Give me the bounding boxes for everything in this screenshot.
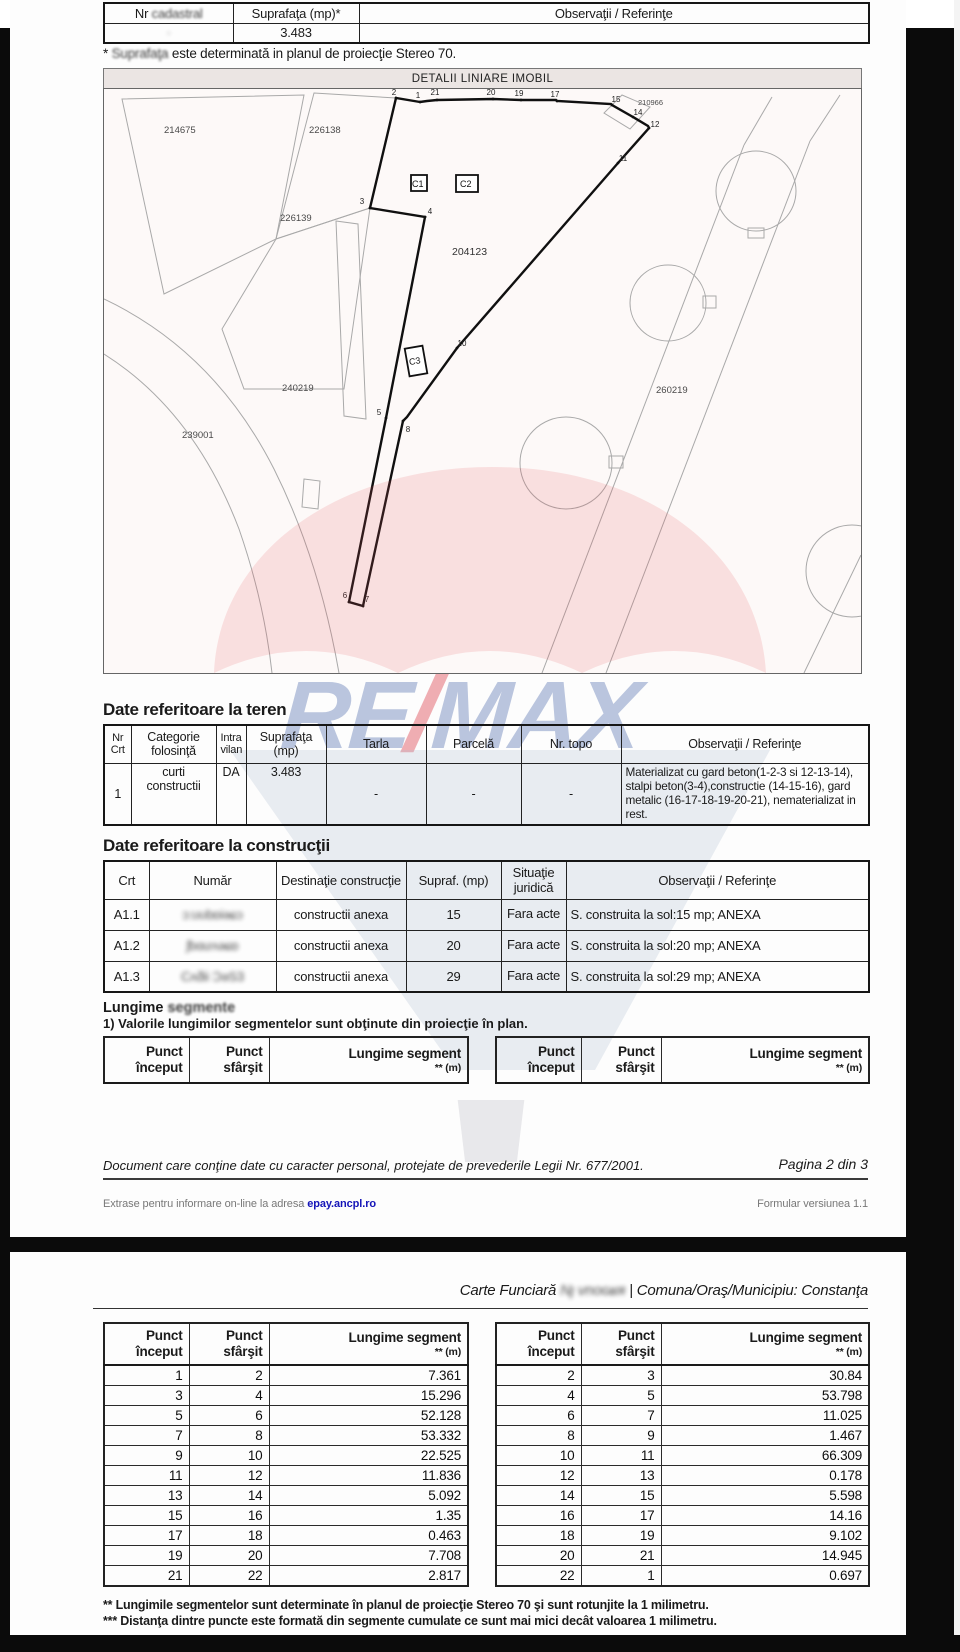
parcel-226139: 226139: [280, 213, 312, 224]
col-lungime-segment: Lungime segment** (m): [269, 1323, 468, 1365]
epay-ancpi-link[interactable]: epay.ancpl.ro: [307, 1198, 376, 1210]
col-crt: Crt: [104, 861, 149, 899]
teren-categorie: curti constructii: [131, 763, 216, 825]
page-number: Pagina 2 din 3: [778, 1156, 868, 1172]
segment-row: 14155.598: [496, 1486, 869, 1506]
constructions: C1 C2 C3: [405, 175, 478, 376]
col-observatii: Observaţii / Referinţe: [359, 3, 869, 23]
segment-row: 21222.817: [104, 1566, 468, 1587]
teren-suprafata: 3.483: [246, 763, 326, 825]
svg-text:14: 14: [634, 108, 643, 117]
supraf-a12: 20: [406, 930, 501, 961]
segment-row: 2330.84: [496, 1365, 869, 1386]
segment-row: 202114.945: [496, 1546, 869, 1566]
col-nr-topo: Nr. topo: [521, 725, 621, 763]
col-nr-cadastral: Nr cadastral: [104, 3, 233, 23]
lungime-note: 1) Valorile lungimilor segmentelor sunt …: [103, 1016, 528, 1031]
teren-topo: -: [521, 763, 621, 825]
footnote-3stars: *** Distanţa dintre puncte este formată …: [103, 1614, 717, 1628]
teren-nr: 1: [104, 763, 131, 825]
page-1: RE / MAX Nr cadastral Suprafaţa (mp)* Ob…: [10, 0, 906, 1237]
segment-row: 127.361: [104, 1365, 468, 1386]
header-divider: [93, 1308, 868, 1309]
segment-row: 6711.025: [496, 1406, 869, 1426]
teren-parcela: -: [426, 763, 521, 825]
col-tarla: Tarla: [326, 725, 426, 763]
col-punct-inceput: Punct început: [496, 1037, 581, 1083]
cadastral-map: 1 2 3 4 5 6 7 8 10 11 12 14 15 17 19 20 …: [103, 88, 862, 674]
segment-row: 19207.708: [104, 1546, 468, 1566]
building-c1-label: C1: [412, 179, 424, 189]
privacy-note: Document care conţine date cu caracter p…: [103, 1158, 644, 1173]
segment-table-right: Punct început Punct sfârşit Lungime segm…: [495, 1322, 870, 1587]
observatii-value: [359, 23, 869, 43]
form-version: Formular versiunea 1.1: [757, 1198, 868, 1210]
svg-text:8: 8: [406, 425, 411, 434]
crt-a12: A1.2: [104, 930, 149, 961]
svg-text:2: 2: [392, 88, 397, 97]
numar-a12: ʃbɑưʌəɕɒ: [149, 930, 276, 961]
svg-text:1: 1: [416, 91, 421, 100]
supraf-a11: 15: [406, 899, 501, 930]
parcel-226138: 226138: [309, 125, 341, 136]
segment-row: 18199.102: [496, 1526, 869, 1546]
stereo70-note: * Suprafaţa este determinată in planul d…: [103, 46, 456, 61]
col-punct-inceput: Punct început: [104, 1037, 189, 1083]
obs-a11: S. construita la sol:15 mp; ANEXA: [566, 899, 869, 930]
svg-text:15: 15: [612, 95, 621, 104]
segment-row: 12130.178: [496, 1466, 869, 1486]
teren-heading: Date referitoare la teren: [103, 700, 286, 720]
obs-a13: S. construita la sol:29 mp; ANEXA: [566, 961, 869, 992]
col-lungime-segment: Lungime segment** (m): [661, 1037, 869, 1083]
cadastral-number-table: Nr cadastral Suprafaţa (mp)* Observaţii …: [103, 2, 870, 44]
col-punct-sfarsit: Punct sfârşit: [581, 1323, 661, 1365]
obs-a12: S. construita la sol:20 mp; ANEXA: [566, 930, 869, 961]
svg-text:10: 10: [458, 339, 467, 348]
segment-row: 111211.836: [104, 1466, 468, 1486]
numar-a11: ɔ:ʊʊbɒiəɕɔ: [149, 899, 276, 930]
online-extras-note: Extrase pentru informare on-line la adre…: [103, 1198, 376, 1210]
constructii-row: A1.1 ɔ:ʊʊbɒiəɕɔ constructii anexa 15 Far…: [104, 899, 869, 930]
situatie-a11: Fara acte: [501, 899, 566, 930]
situatie-a12: Fara acte: [501, 930, 566, 961]
suprafata-value: 3.483: [233, 23, 359, 43]
page-2: Carte Funciară Nȷ vnᴏɢʁя | Comuna/Oraş/M…: [10, 1252, 906, 1635]
svg-text:21: 21: [431, 88, 440, 97]
teren-tarla: -: [326, 763, 426, 825]
svg-text:17: 17: [551, 90, 560, 99]
segment-row: 15161.35: [104, 1506, 468, 1526]
svg-text:20: 20: [487, 88, 496, 97]
scanned-cadastral-document: { "colors":{"watermark_red":"#e05560","w…: [0, 0, 960, 1652]
segment-table-left-empty: Punct început Punct sfârşit Lungime segm…: [103, 1036, 469, 1084]
segment-row: 161714.16: [496, 1506, 869, 1526]
parcel-204123: 204123: [452, 246, 487, 258]
col-constructii-observatii: Observaţii / Referinţe: [566, 861, 869, 899]
map-title: DETALII LINIARE IMOBIL: [412, 73, 554, 85]
col-nr-crt: Nr Crt: [104, 725, 131, 763]
supraf-a13: 29: [406, 961, 501, 992]
destinatie-a11: constructii anexa: [276, 899, 406, 930]
col-suprafata-mp: Suprafaţa (mp): [246, 725, 326, 763]
crt-a11: A1.1: [104, 899, 149, 930]
col-lungime-segment: Lungime segment** (m): [269, 1037, 468, 1083]
lungime-heading: Lungime segmente: [103, 1000, 235, 1016]
segment-table-right-empty: Punct început Punct sfârşit Lungime segm…: [495, 1036, 870, 1084]
segment-row: 2210.697: [496, 1566, 869, 1587]
carte-funciara-header: Carte Funciară Nȷ vnᴏɢʁя | Comuna/Oraş/M…: [460, 1282, 868, 1299]
parcel-240219: 240219: [282, 383, 314, 394]
svg-text:19: 19: [515, 89, 524, 98]
teren-observatii: Materializat cu gard beton(1-2-3 si 12-1…: [621, 763, 869, 825]
watermark-balloon-basket: [454, 1100, 528, 1162]
segment-row: 7853.332: [104, 1426, 468, 1446]
segment-row: 91022.525: [104, 1446, 468, 1466]
segment-table-left: Punct început Punct sfârşit Lungime segm…: [103, 1322, 469, 1587]
teren-intravilan: DA: [216, 763, 246, 825]
col-punct-inceput: Punct început: [496, 1323, 581, 1365]
footer-divider: [103, 1178, 868, 1180]
svg-text:4: 4: [428, 207, 433, 216]
destinatie-a12: constructii anexa: [276, 930, 406, 961]
col-numar: Număr: [149, 861, 276, 899]
crt-a13: A1.3: [104, 961, 149, 992]
constructii-row: A1.2 ʃbɑưʌəɕɒ constructii anexa 20 Fara …: [104, 930, 869, 961]
col-parcela: Parcelă: [426, 725, 521, 763]
constructii-row: A1.3 Cʌƌii ƆəS3 constructii anexa 29 Far…: [104, 961, 869, 992]
parcel-214675: 214675: [164, 125, 196, 136]
col-destinatie: Destinaţie construcţie: [276, 861, 406, 899]
col-punct-sfarsit: Punct sfârşit: [581, 1037, 661, 1083]
col-situatie: Situaţie juridică: [501, 861, 566, 899]
col-categorie: Categorie folosinţă: [131, 725, 216, 763]
constructii-heading: Date referitoare la construcţii: [103, 836, 330, 856]
nr-cadastral-value: ·: [104, 23, 233, 43]
segment-row: 5652.128: [104, 1406, 468, 1426]
building-c3-label: C3: [408, 355, 421, 367]
teren-table: Nr Crt Categorie folosinţă Intra vilan S…: [103, 724, 870, 826]
col-teren-observatii: Observaţii / Referinţe: [621, 725, 869, 763]
svg-text:12: 12: [651, 120, 660, 129]
parcel-260219: 260219: [656, 385, 688, 396]
segment-row: 3415.296: [104, 1386, 468, 1406]
col-lungime-segment: Lungime segment** (m): [661, 1323, 869, 1365]
col-supraf-mp: Supraf. (mp): [406, 861, 501, 899]
parcel-210966: 210966: [638, 98, 663, 107]
col-punct-sfarsit: Punct sfârşit: [189, 1323, 269, 1365]
building-c2-label: C2: [460, 179, 472, 189]
col-suprafata: Suprafaţa (mp)*: [233, 3, 359, 23]
svg-text:3: 3: [360, 197, 365, 206]
scan-right-page-edge: [954, 0, 960, 1635]
map-title-band: DETALII LINIARE IMOBIL: [103, 68, 862, 89]
svg-text:5: 5: [377, 408, 382, 417]
svg-text:11: 11: [619, 154, 628, 163]
segment-row: 13145.092: [104, 1486, 468, 1506]
destinatie-a13: constructii anexa: [276, 961, 406, 992]
segment-row: 891.467: [496, 1426, 869, 1446]
situatie-a13: Fara acte: [501, 961, 566, 992]
watermark-balloon-canopy: [214, 467, 766, 673]
parcel-239001: 239001: [182, 430, 214, 441]
constructii-table: Crt Număr Destinaţie construcţie Supraf.…: [103, 860, 870, 993]
col-intravilan: Intra vilan: [216, 725, 246, 763]
segment-row: 17180.463: [104, 1526, 468, 1546]
segment-row: 4553.798: [496, 1386, 869, 1406]
footnote-2stars: ** Lungimile segmentelor sunt determinat…: [103, 1598, 709, 1612]
segment-row: 101166.309: [496, 1446, 869, 1466]
numar-a13: Cʌƌii ƆəS3: [149, 961, 276, 992]
col-punct-sfarsit: Punct sfârşit: [189, 1037, 269, 1083]
col-punct-inceput: Punct început: [104, 1323, 189, 1365]
